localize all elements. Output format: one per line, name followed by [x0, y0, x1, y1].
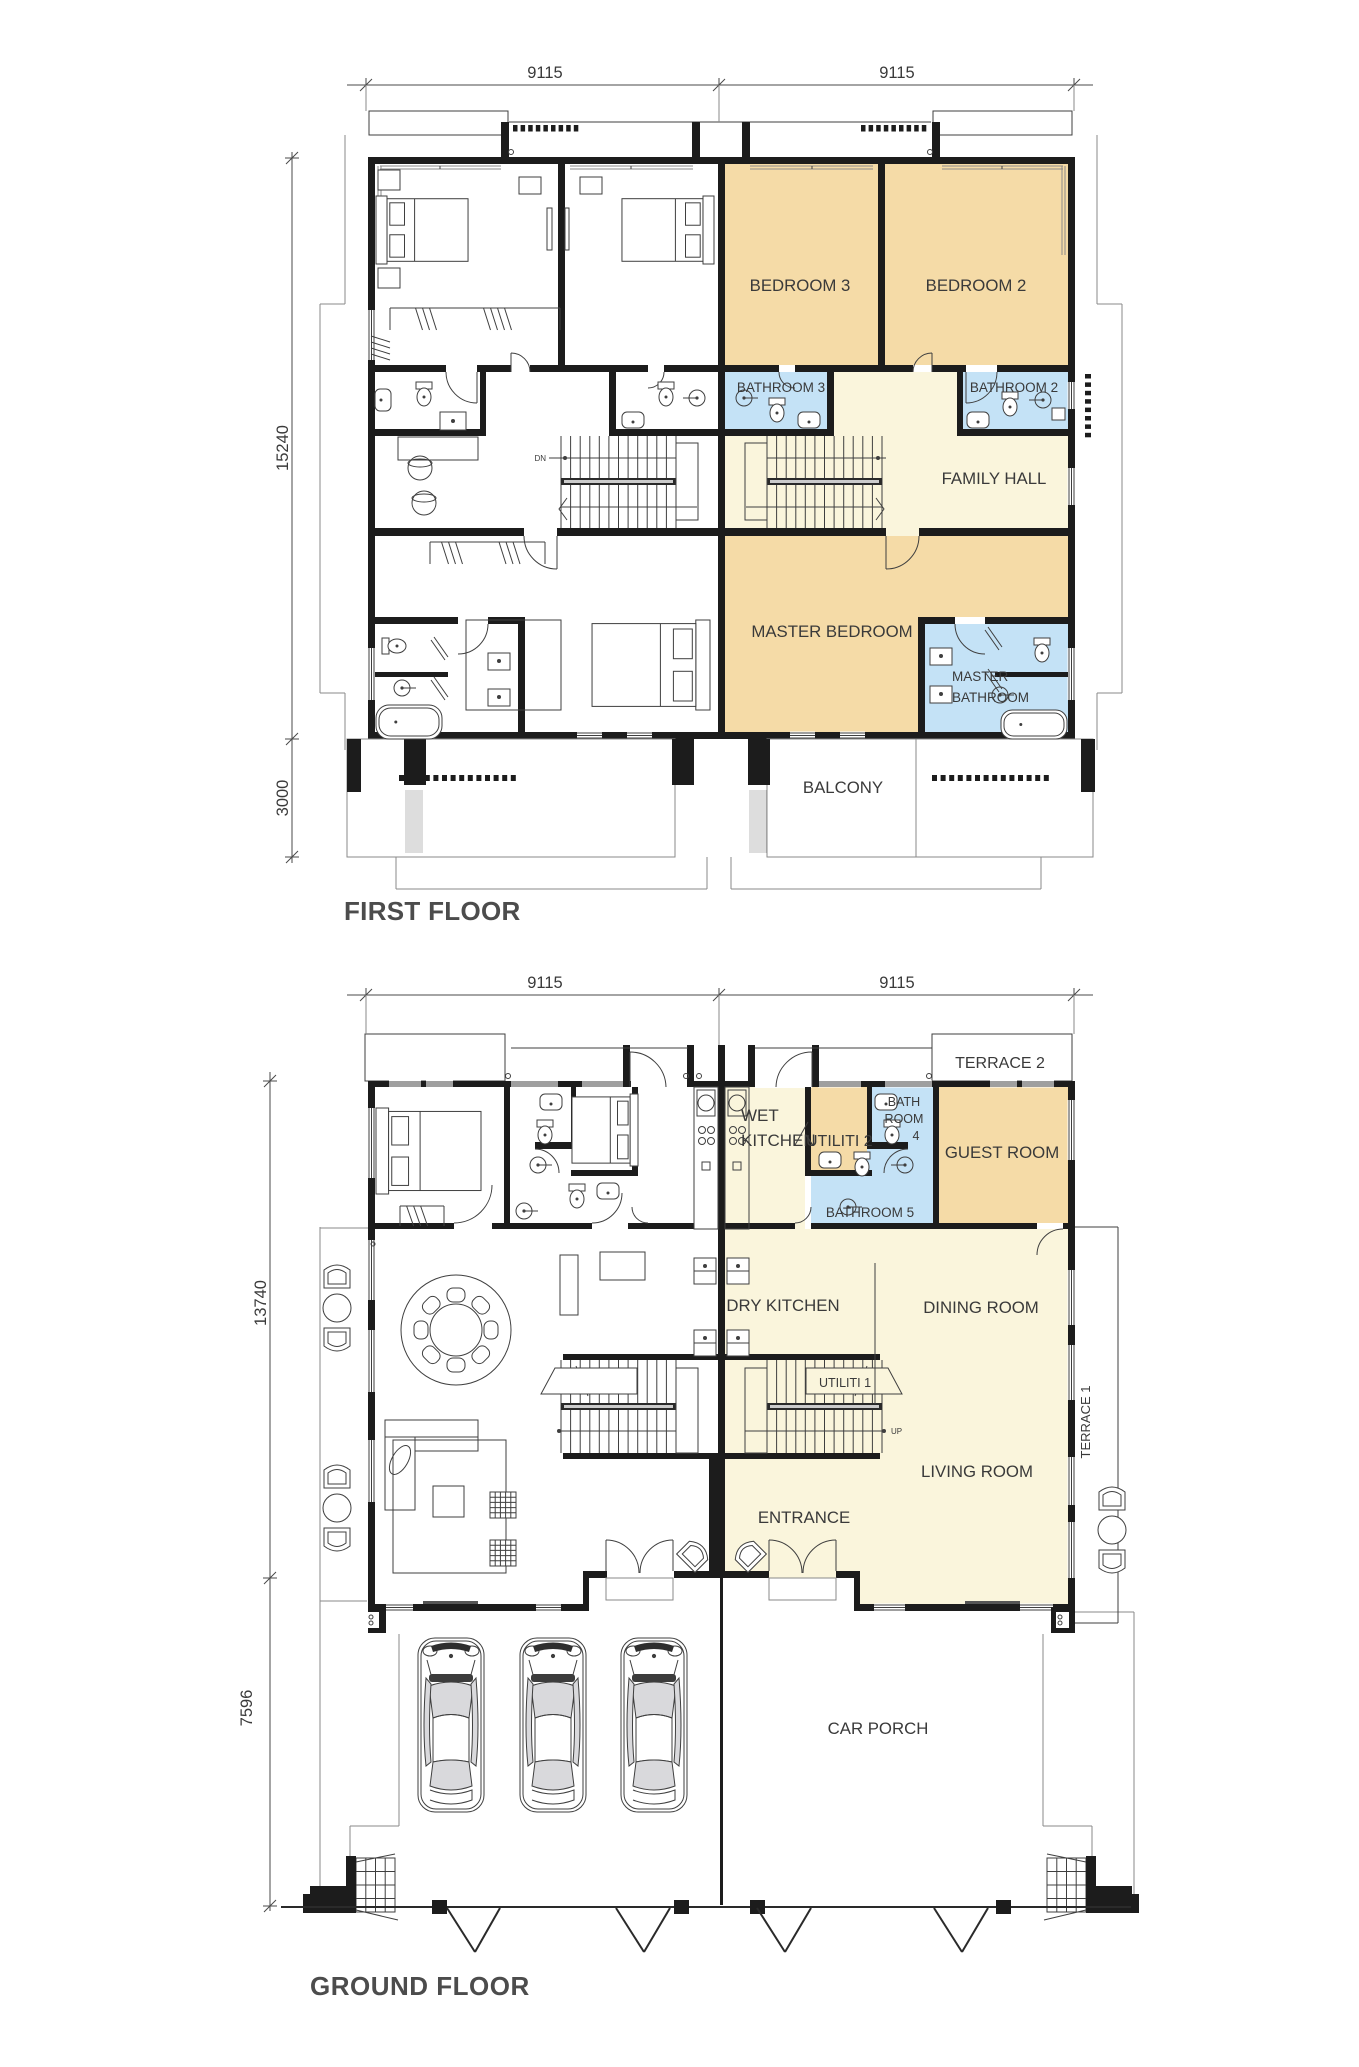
svg-text:BATH: BATH	[888, 1095, 920, 1109]
svg-text:FAMILY HALL: FAMILY HALL	[942, 469, 1047, 488]
svg-text:BATHROOM: BATHROOM	[952, 690, 1029, 705]
svg-text:UP: UP	[891, 1427, 902, 1436]
svg-text:TERRACE 2: TERRACE 2	[955, 1055, 1045, 1072]
svg-text:13740: 13740	[252, 1280, 270, 1326]
svg-text:15240: 15240	[274, 425, 292, 471]
svg-text:9115: 9115	[527, 64, 562, 82]
svg-text:9115: 9115	[879, 974, 914, 992]
svg-text:DN: DN	[534, 454, 546, 463]
svg-text:ENTRANCE: ENTRANCE	[758, 1508, 850, 1527]
svg-text:MASTER BEDROOM: MASTER BEDROOM	[751, 622, 912, 641]
svg-text:FIRST FLOOR: FIRST FLOOR	[344, 896, 521, 926]
svg-text:KITCHEN: KITCHEN	[741, 1131, 816, 1150]
svg-text:BATHROOM 5: BATHROOM 5	[826, 1205, 914, 1220]
svg-text:GROUND FLOOR: GROUND FLOOR	[310, 1971, 530, 2001]
svg-text:9115: 9115	[527, 974, 562, 992]
svg-text:GUEST ROOM: GUEST ROOM	[945, 1143, 1059, 1162]
svg-text:BEDROOM 3: BEDROOM 3	[750, 276, 851, 295]
svg-text:DINING ROOM: DINING ROOM	[923, 1298, 1039, 1317]
svg-text:DRY KITCHEN: DRY KITCHEN	[726, 1296, 839, 1315]
svg-text:3000: 3000	[274, 780, 292, 817]
svg-text:TERRACE 1: TERRACE 1	[1078, 1386, 1093, 1459]
svg-text:LIVING ROOM: LIVING ROOM	[921, 1462, 1033, 1481]
svg-text:BATHROOM 3: BATHROOM 3	[737, 380, 825, 395]
svg-text:9115: 9115	[879, 64, 914, 82]
svg-text:BALCONY: BALCONY	[803, 778, 883, 797]
svg-text:UTILITI 1: UTILITI 1	[819, 1376, 871, 1390]
svg-text:CAR PORCH: CAR PORCH	[828, 1719, 929, 1738]
svg-text:WET: WET	[741, 1106, 779, 1125]
svg-text:UTILITI 2: UTILITI 2	[806, 1133, 873, 1150]
svg-text:7596: 7596	[238, 1690, 256, 1727]
svg-text:4: 4	[913, 1129, 920, 1143]
svg-text:ROOM: ROOM	[885, 1112, 924, 1126]
svg-text:BATHROOM 2: BATHROOM 2	[970, 380, 1058, 395]
svg-text:MASTER: MASTER	[952, 669, 1009, 684]
svg-text:BEDROOM 2: BEDROOM 2	[926, 276, 1027, 295]
